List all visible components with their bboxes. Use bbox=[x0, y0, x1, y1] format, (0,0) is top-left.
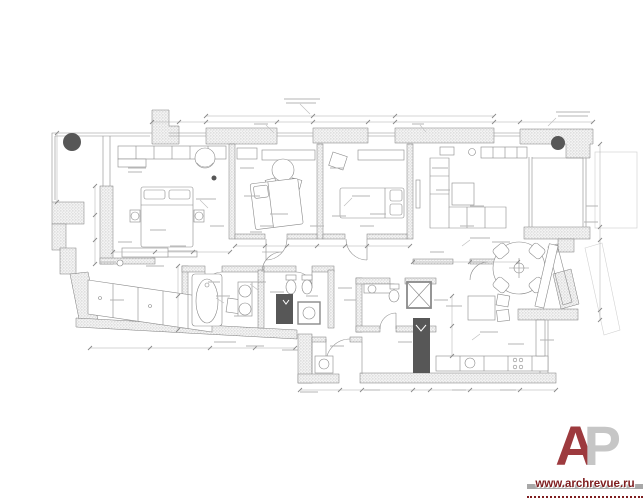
dresser bbox=[118, 159, 146, 167]
console bbox=[440, 147, 454, 155]
tv-panel bbox=[416, 180, 420, 208]
round-column bbox=[551, 136, 565, 150]
washer-drum bbox=[319, 359, 329, 369]
window-top-3 bbox=[368, 133, 395, 136]
hanger-mark bbox=[149, 305, 152, 308]
wall-right-diagonal bbox=[553, 269, 579, 309]
shelf-run bbox=[358, 150, 404, 160]
wall-right-step bbox=[558, 239, 574, 252]
floor-plan-canvas bbox=[0, 0, 643, 500]
partition-room3-south-a bbox=[323, 234, 345, 239]
cooktop-burner bbox=[519, 365, 523, 369]
floor-plan-drawing bbox=[0, 0, 643, 500]
washbasin bbox=[368, 285, 376, 293]
partition-room2-south-b bbox=[287, 234, 317, 239]
balcony-glazing bbox=[529, 157, 586, 227]
chair bbox=[497, 309, 510, 321]
kids-bedroom-1 bbox=[237, 148, 315, 230]
mirror-dot bbox=[117, 260, 123, 266]
toilet-tank bbox=[286, 275, 296, 280]
wall-dining-south bbox=[518, 309, 578, 320]
logo-letter-p: P bbox=[584, 414, 616, 477]
chair bbox=[496, 294, 510, 307]
site-url-text[interactable]: www.archrevue.ru bbox=[527, 478, 643, 490]
round-armchair bbox=[195, 148, 215, 168]
hanger-mark bbox=[99, 297, 102, 300]
toilet-bowl bbox=[286, 280, 296, 294]
table-lamp bbox=[195, 212, 203, 220]
wall-terrace-step-2 bbox=[52, 224, 66, 250]
tall-cabinet bbox=[536, 320, 545, 356]
gwc-wall-south-a bbox=[356, 326, 380, 332]
vestibule-wall-north-b bbox=[350, 337, 362, 342]
partition-2 bbox=[317, 144, 323, 239]
desk-shelf bbox=[262, 150, 315, 160]
partition-3 bbox=[407, 144, 413, 239]
wardrobe-run bbox=[481, 147, 527, 158]
console bbox=[122, 248, 168, 257]
cooktop-burner bbox=[519, 358, 523, 362]
toilet-tank bbox=[390, 284, 399, 289]
kitchen-sink bbox=[465, 358, 475, 368]
wall-balcony-south bbox=[524, 227, 590, 239]
round-column bbox=[63, 133, 81, 151]
partition-living-south-a bbox=[413, 259, 453, 264]
pillow bbox=[390, 204, 402, 215]
gwc-wall-north-a bbox=[356, 278, 390, 284]
outer-ramp-right bbox=[585, 243, 620, 335]
door-guest-wc bbox=[380, 313, 396, 329]
wc-wall-north-a bbox=[264, 266, 296, 272]
kids-bedroom-2 bbox=[329, 150, 404, 218]
partition-room3-south-b bbox=[367, 234, 407, 239]
washbasin bbox=[239, 285, 251, 297]
living-room bbox=[416, 147, 527, 228]
wall-terrace-step-1 bbox=[52, 202, 84, 224]
lamp bbox=[469, 149, 476, 156]
table-lamp bbox=[131, 212, 139, 220]
coffee-table bbox=[452, 183, 474, 205]
wall-bedroom-west bbox=[100, 186, 113, 264]
partition-1 bbox=[229, 144, 235, 239]
entry-vestibule bbox=[315, 356, 333, 373]
wall-kitchen-south bbox=[360, 373, 556, 383]
wall-top-4 bbox=[395, 128, 494, 143]
ceiling-dot bbox=[212, 176, 217, 181]
vestibule-wall-north-a bbox=[312, 337, 326, 342]
wall-top-left-step bbox=[152, 110, 179, 144]
counter-run bbox=[436, 356, 548, 371]
bidet-tank bbox=[302, 275, 312, 280]
site-url-banner[interactable]: www.archrevue.ru bbox=[527, 478, 643, 494]
wall-hall-west-1 bbox=[60, 248, 76, 274]
window-top-2 bbox=[277, 133, 313, 136]
bathroom bbox=[192, 274, 252, 326]
wc-wall-east bbox=[328, 270, 334, 328]
washbasin bbox=[239, 303, 251, 315]
bathtub-drain bbox=[205, 283, 209, 287]
partition-room1-south-a bbox=[100, 258, 155, 264]
window-top-4 bbox=[494, 133, 520, 136]
url-dotted-underline bbox=[527, 496, 643, 498]
door-room3 bbox=[346, 239, 367, 260]
toilet-bowl bbox=[389, 290, 399, 302]
cooktop-burner bbox=[513, 358, 517, 362]
ventilation-shaft bbox=[413, 318, 430, 373]
wall-vestibule-south bbox=[298, 374, 339, 383]
outer-balcony-right bbox=[595, 152, 637, 228]
bath-wall-north-b bbox=[222, 266, 264, 272]
wall-top-2 bbox=[206, 128, 277, 144]
pillow bbox=[390, 190, 402, 201]
washer-drum bbox=[303, 307, 315, 319]
pillow bbox=[169, 190, 190, 199]
cabinet bbox=[237, 148, 257, 159]
pillow bbox=[144, 190, 165, 199]
bidet-bowl bbox=[302, 280, 312, 294]
wall-top-3 bbox=[313, 128, 368, 143]
ventilation-shaft bbox=[276, 294, 293, 324]
round-table bbox=[272, 159, 294, 181]
tilted-armchair bbox=[329, 152, 348, 170]
master-bedroom bbox=[118, 146, 226, 257]
door-living bbox=[470, 262, 488, 280]
bath-wall-mid bbox=[258, 270, 264, 328]
guest-wc bbox=[364, 282, 431, 308]
partition-room2-south-a bbox=[235, 234, 265, 239]
breakfast-table bbox=[468, 296, 495, 320]
gwc-wall-west bbox=[356, 278, 362, 332]
cooktop-burner bbox=[513, 365, 517, 369]
bath-wall-north-a bbox=[182, 266, 205, 272]
window-bedroom-west bbox=[103, 136, 110, 186]
archrevue-logo: AP bbox=[555, 418, 616, 474]
